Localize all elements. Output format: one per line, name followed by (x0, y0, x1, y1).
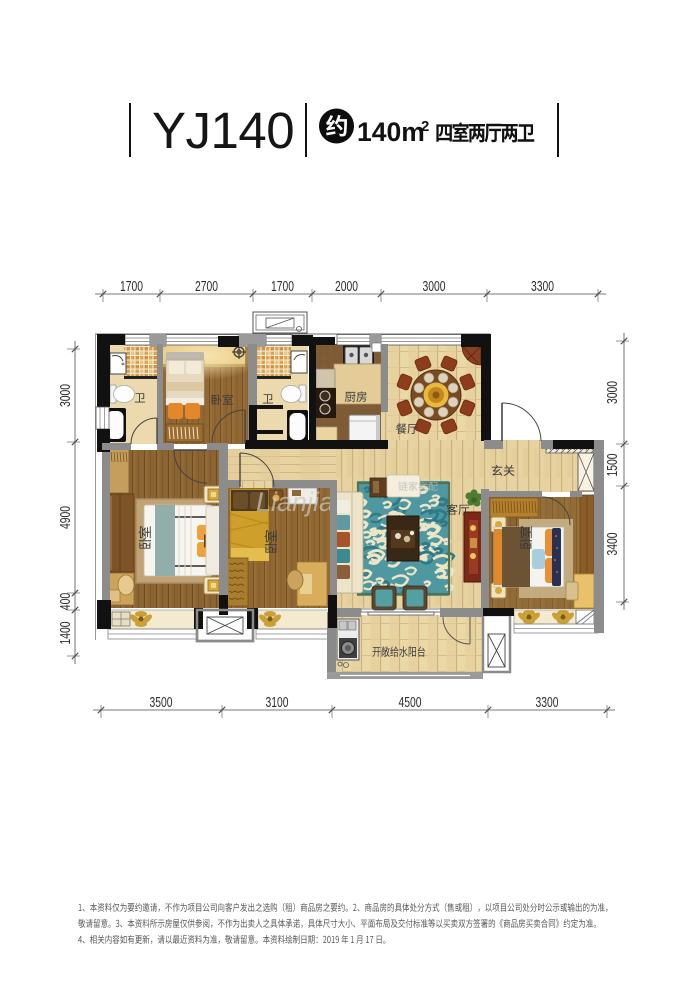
svg-text:YJ140: YJ140 (152, 102, 294, 159)
svg-text:3500: 3500 (150, 695, 173, 711)
svg-text:1400: 1400 (58, 622, 74, 645)
svg-text:4900: 4900 (58, 506, 74, 529)
svg-text:400: 400 (58, 593, 74, 611)
svg-text:3000: 3000 (605, 381, 621, 404)
svg-text:Lianjia: Lianjia (256, 487, 334, 517)
svg-text:3300: 3300 (536, 695, 559, 711)
svg-text:4500: 4500 (399, 695, 422, 711)
svg-text:1700: 1700 (120, 279, 143, 295)
svg-text:140m: 140m (357, 117, 425, 147)
svg-text:2: 2 (421, 118, 429, 135)
svg-text:1700: 1700 (271, 279, 294, 295)
svg-text:2700: 2700 (195, 279, 218, 295)
svg-text:3300: 3300 (531, 279, 554, 295)
svg-text:3400: 3400 (605, 533, 621, 556)
svg-text:1500: 1500 (605, 454, 621, 477)
svg-text:3100: 3100 (266, 695, 289, 711)
svg-text:2000: 2000 (335, 279, 358, 295)
svg-text:3000: 3000 (423, 279, 446, 295)
svg-text:3000: 3000 (58, 384, 74, 407)
